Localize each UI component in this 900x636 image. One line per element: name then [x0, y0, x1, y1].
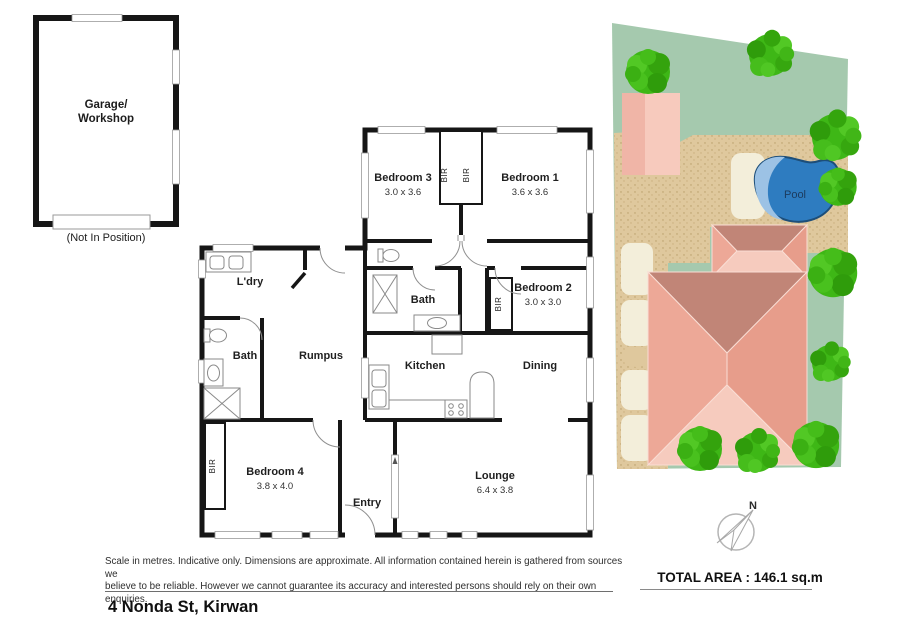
vanity-second: [204, 359, 223, 386]
label-bedroom3: Bedroom 3: [374, 172, 431, 184]
label-bedroom1: Bedroom 1: [501, 172, 558, 184]
address: 4 Nonda St, Kirwan: [108, 598, 258, 617]
dims-bedroom1: 3.6 x 3.6: [512, 187, 548, 198]
north-label: N: [749, 500, 757, 512]
label-bath-second: Bath: [233, 350, 258, 362]
compass-rose: N: [703, 496, 778, 562]
compass-needle-2: [731, 510, 753, 551]
label-bir-2: BIR: [462, 168, 471, 183]
label-laundry: L'dry: [237, 276, 264, 288]
divider-right: [640, 589, 812, 590]
site-plan: Pool: [605, 15, 865, 480]
shower-main: [373, 275, 397, 313]
pool-label: Pool: [784, 189, 806, 201]
label-bath-main: Bath: [411, 294, 436, 306]
garage-plan: [30, 12, 190, 262]
label-kitchen: Kitchen: [405, 360, 446, 372]
linen-closet: [432, 335, 462, 354]
main-floor-plan: Bedroom 3 3.0 x 3.6 Bedroom 1 3.6 x 3.6 …: [195, 123, 595, 547]
disclaimer-line-1: Scale in metres. Indicative only. Dimens…: [105, 556, 625, 581]
kitchen-sink: [369, 365, 389, 409]
label-lounge: Lounge: [475, 470, 515, 482]
toilet-second: [204, 329, 227, 342]
dims-bedroom2: 3.0 x 3.0: [525, 297, 561, 308]
fridge: [470, 372, 494, 418]
garage-door: [53, 215, 150, 229]
vanity-main: [414, 315, 460, 331]
stove: [445, 400, 467, 418]
label-rumpus: Rumpus: [299, 350, 343, 362]
label-bedroom4: Bedroom 4: [246, 466, 304, 478]
dims-bedroom4: 3.8 x 4.0: [257, 481, 293, 492]
garage-label: Garage/ Workshop: [36, 98, 176, 127]
label-dining: Dining: [523, 360, 557, 372]
divider-left: [105, 591, 613, 592]
garage-note: (Not In Position): [26, 232, 186, 244]
shower-second: [204, 388, 240, 419]
label-bir-3: BIR: [494, 297, 503, 312]
label-bedroom2: Bedroom 2: [514, 282, 571, 294]
dims-lounge: 6.4 x 3.8: [477, 485, 513, 496]
garage-building: [622, 93, 680, 175]
label-bir-1: BIR: [440, 168, 449, 183]
label-entry: Entry: [353, 497, 382, 509]
label-bir-4: BIR: [208, 459, 217, 474]
wc-toilet: [378, 249, 399, 262]
laundry-tub: [206, 252, 251, 272]
total-area: TOTAL AREA : 146.1 sq.m: [640, 570, 840, 585]
floor-plan-page: Garage/ Workshop (Not In Position): [0, 0, 900, 636]
dims-bedroom3: 3.0 x 3.6: [385, 187, 421, 198]
